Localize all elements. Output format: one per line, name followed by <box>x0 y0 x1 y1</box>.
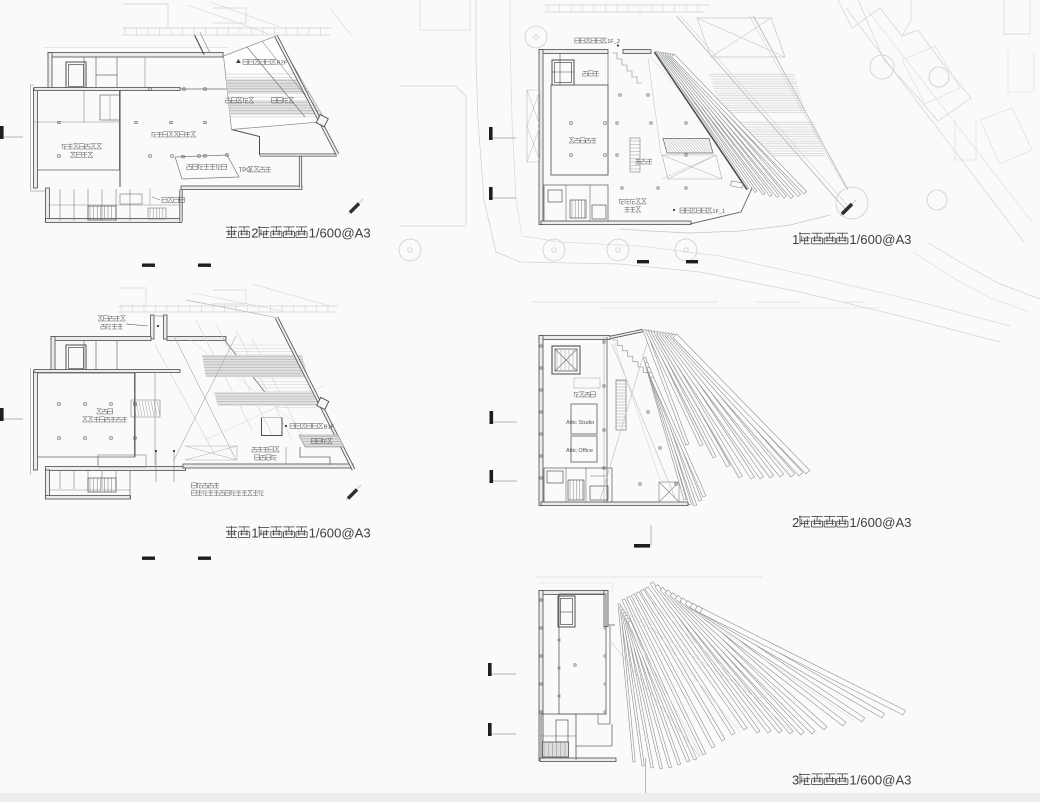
svg-text:1/600@A3: 1/600@A3 <box>849 773 911 788</box>
svg-text:1/600@A3: 1/600@A3 <box>849 515 911 530</box>
svg-text:3: 3 <box>792 773 799 788</box>
svg-text:1/600@A3: 1/600@A3 <box>849 232 911 247</box>
svg-text:1: 1 <box>792 232 799 247</box>
svg-text:1F_2: 1F_2 <box>607 39 620 45</box>
svg-text:1/600@A3: 1/600@A3 <box>309 226 371 241</box>
svg-text:1: 1 <box>251 526 258 541</box>
svg-text:1F_1: 1F_1 <box>712 209 725 215</box>
svg-text:Attic Studio: Attic Studio <box>566 420 594 426</box>
svg-text:B1F: B1F <box>324 425 335 431</box>
svg-text:2: 2 <box>251 226 258 241</box>
svg-text:Attic Office: Attic Office <box>566 448 593 454</box>
svg-text:B2F: B2F <box>277 61 288 67</box>
svg-text:2: 2 <box>792 515 799 530</box>
svg-text:1/600@A3: 1/600@A3 <box>309 526 371 541</box>
